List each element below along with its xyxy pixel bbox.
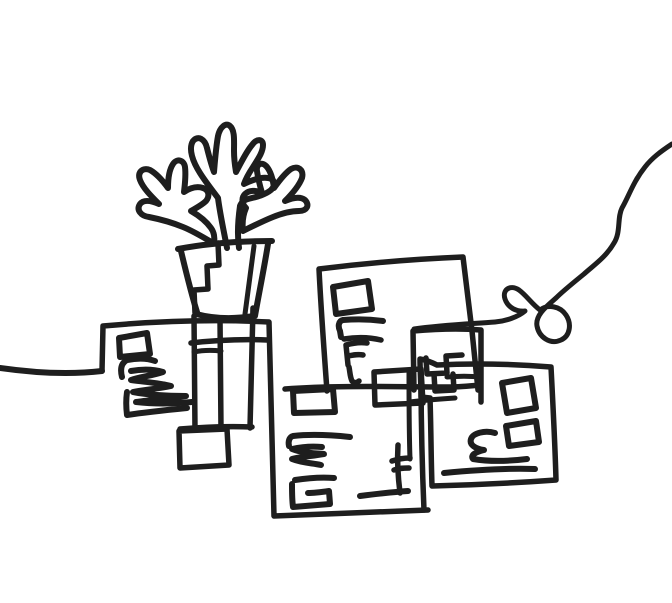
doodle-svg bbox=[0, 0, 672, 603]
left-card-inner-rect bbox=[119, 333, 150, 357]
plant-column-rung bbox=[194, 350, 221, 352]
column-foot-rect bbox=[179, 429, 229, 468]
pot-inner-staircase bbox=[194, 243, 219, 313]
bottom-card-scribble-spiral bbox=[292, 478, 334, 507]
plant-column-right bbox=[220, 318, 221, 429]
middle-card-scribble-bar bbox=[339, 319, 383, 337]
left-card-scribble-zigzag bbox=[131, 370, 192, 404]
pot-right-side-inner bbox=[245, 246, 254, 314]
string-squiggle-with-loops bbox=[414, 144, 672, 342]
middle-card-scribble-f bbox=[346, 343, 367, 383]
pot-base bbox=[196, 314, 254, 318]
stair-bar bbox=[447, 376, 481, 377]
plant-column-left bbox=[194, 316, 195, 430]
right-card-underline bbox=[444, 469, 535, 473]
bottom-card-scribble-zigzag bbox=[292, 447, 324, 465]
illustration-canvas bbox=[0, 0, 672, 603]
right-card-inner-rect-big bbox=[502, 378, 536, 413]
right-card-inner-rect-small bbox=[506, 421, 539, 446]
pot-right-side-outer bbox=[255, 244, 268, 316]
middle-card-inner-rect bbox=[333, 281, 372, 314]
bottom-card-inner-vertical bbox=[409, 373, 410, 459]
left-card-right-edge bbox=[250, 308, 253, 428]
connector-line-mid bbox=[191, 340, 267, 343]
middle-card-scribble-bar2 bbox=[344, 338, 381, 340]
entry-line-left bbox=[0, 368, 102, 373]
line-doodle-strokes bbox=[0, 125, 672, 516]
